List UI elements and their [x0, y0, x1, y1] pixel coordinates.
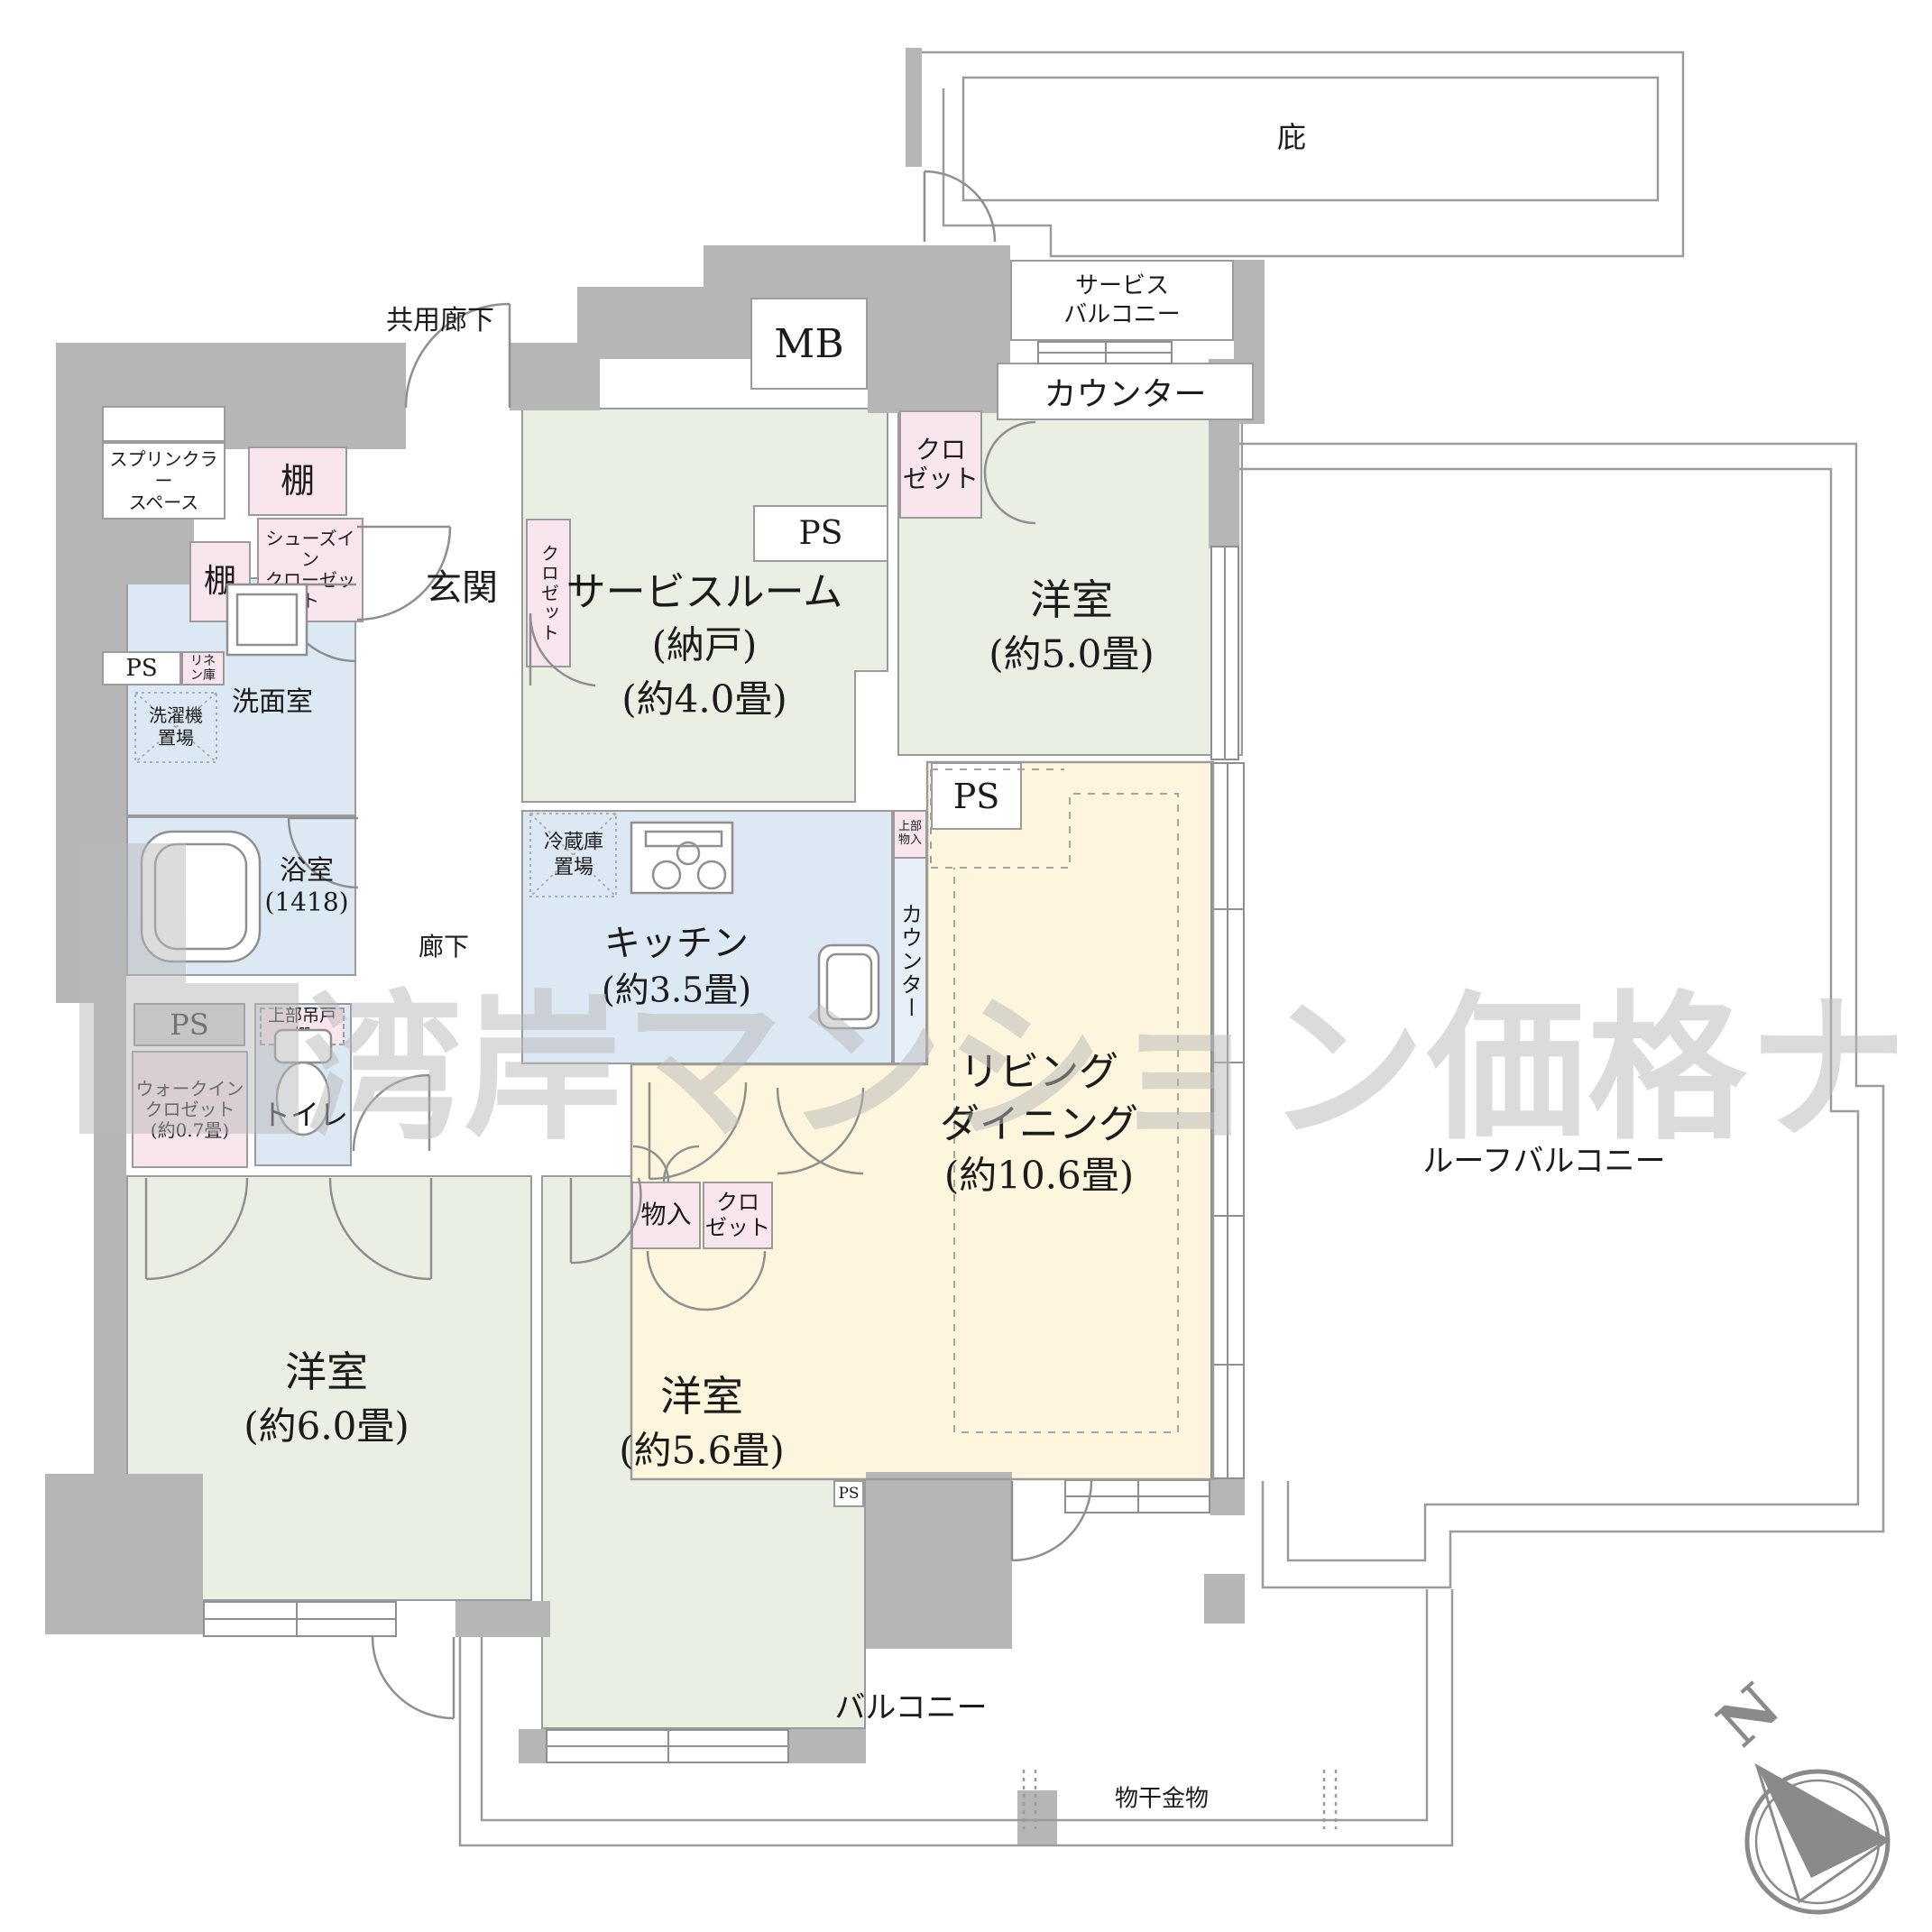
- label-common-corridor: 共用廊下: [386, 298, 494, 337]
- compass-needle-fill: [1757, 1766, 1888, 1878]
- monoire-label: 物入: [640, 1201, 691, 1229]
- label-ld-line1: リビング: [960, 1039, 1118, 1097]
- upper-storage-label2: 物入: [898, 834, 922, 848]
- label-bed56-name: 洋室: [660, 1364, 743, 1423]
- ps-label: PS: [799, 515, 843, 552]
- wall-pillar: [1017, 1790, 1057, 1846]
- closet-label2: ゼット: [705, 1216, 770, 1241]
- compass-inner-circle: [1756, 1780, 1879, 1903]
- roof-balcony-outline-inner: [1239, 469, 1858, 1560]
- ps-label: PS: [170, 1007, 208, 1042]
- shoes-label1: シューズイン: [259, 529, 362, 570]
- ps-box-top: PS: [753, 505, 888, 562]
- wall: [577, 287, 713, 359]
- roof-balcony-outline-outer: [1239, 444, 1883, 1587]
- window-bed6-bottom: [203, 1601, 397, 1637]
- wall: [94, 1003, 126, 1474]
- upper-cabinet-label: 上部吊戸棚: [262, 1007, 343, 1046]
- shelf-box-top: 棚: [248, 446, 347, 516]
- label-kitchen-size: (約3.5畳): [602, 962, 751, 1012]
- wall-pillar: [1204, 1574, 1245, 1624]
- floor-plan: スプリンクラー スペース 棚 シューズイン クローゼット 棚 PS リネ ン庫 …: [0, 0, 1932, 1932]
- label-washer1: 洗濯機: [149, 704, 203, 726]
- wic-label3: (約0.7畳): [151, 1120, 229, 1141]
- mb-box: MB: [750, 298, 868, 390]
- label-kitchen-name: キッチン: [604, 914, 749, 966]
- door-toilet: [354, 1075, 429, 1151]
- label-bed56-size: (約5.6畳): [619, 1421, 785, 1476]
- shoes-label2: クローゼット: [259, 570, 362, 612]
- closet-label1: クロ: [915, 436, 966, 465]
- upper-cabinet-box-toilet: 上部吊戸棚: [260, 1007, 345, 1045]
- label-washer2: 置場: [158, 727, 194, 749]
- compass-north-label: N: [1704, 1670, 1794, 1761]
- label-ld-size: (約10.6畳): [944, 1145, 1134, 1201]
- counter-box-top: カウンター: [997, 363, 1254, 420]
- wall: [868, 359, 1010, 413]
- window-counter-top: [1037, 341, 1173, 364]
- wall: [45, 1474, 203, 1634]
- service-balcony-label1: サービス: [1075, 272, 1169, 299]
- label-fridge1: 冷蔵庫: [544, 832, 603, 854]
- label-service-sub: (納戸): [652, 615, 758, 670]
- closet-box-bed56: クロ ゼット: [703, 1182, 773, 1249]
- label-bed5-size: (約5.0畳): [989, 624, 1155, 679]
- wall: [455, 1601, 550, 1637]
- label-monohoshi: 物干金物: [1115, 1780, 1209, 1814]
- door-hisashi: [925, 171, 995, 242]
- wall: [906, 48, 922, 167]
- label-service-name: サービスルーム: [566, 559, 843, 617]
- hisashi-outline-inner: [963, 78, 1658, 200]
- shelf-label: 棚: [204, 563, 236, 600]
- label-bed5-name: 洋室: [1030, 567, 1113, 627]
- closet-box-entrance: クロゼット: [526, 519, 571, 667]
- closet-box-bed5: クロ ゼット: [899, 410, 982, 519]
- sprinkler-space-box-top: [102, 406, 225, 442]
- label-service-size: (約4.0畳): [621, 669, 787, 724]
- ps-label: PS: [838, 1485, 859, 1503]
- window-bed56-bottom: [546, 1729, 789, 1763]
- label-bed6-name: 洋室: [285, 1339, 368, 1399]
- label-ld-line2: ダイニング: [940, 1091, 1138, 1149]
- window-ld-right: [1210, 762, 1245, 1479]
- door-bed6-balcony: [373, 1637, 454, 1718]
- label-bath: 浴室: [280, 848, 334, 888]
- label-fridge: 冷蔵庫 置場: [544, 831, 603, 880]
- label-washer: 洗濯機 置場: [149, 704, 203, 750]
- closet-label2: ゼット: [903, 465, 979, 493]
- compass-needle-outline: [1757, 1766, 1888, 1901]
- label-balcony: バルコニー: [834, 1683, 987, 1727]
- closet-label: クロゼット: [538, 544, 559, 643]
- linen-label1: リネ: [190, 654, 216, 668]
- label-hisashi: 庇: [1277, 115, 1306, 156]
- shelf-label: 棚: [281, 462, 315, 501]
- upper-storage-box-kitchen: 上部 物入: [893, 810, 927, 859]
- label-fridge2: 置場: [554, 856, 593, 879]
- sprinkler-space-box: スプリンクラー スペース: [102, 442, 225, 520]
- wall: [56, 584, 126, 1003]
- sprinkler-label2: スペース: [129, 492, 199, 513]
- upper-storage-label1: 上部: [898, 821, 922, 834]
- wic-box: ウォークイン クロゼット (約0.7畳): [132, 1051, 248, 1168]
- mb-label: MB: [774, 321, 843, 367]
- compass-outer-circle: [1747, 1771, 1888, 1912]
- linen-box: リネ ン庫: [181, 651, 225, 685]
- ps-label: PS: [125, 655, 157, 682]
- label-washroom: 洗面室: [232, 679, 313, 719]
- ps-box-washroom: PS: [102, 651, 181, 685]
- wall: [519, 1729, 547, 1763]
- wic-label1: ウォークイン: [136, 1079, 244, 1099]
- service-balcony-box: サービス バルコニー: [1010, 260, 1234, 341]
- wall: [787, 1729, 866, 1763]
- label-kitchen-counter: カウンター: [895, 903, 926, 1020]
- label-bed6-size: (約6.0畳): [244, 1396, 409, 1451]
- closet-label1: クロ: [716, 1191, 759, 1216]
- label-bath-size: (1418): [264, 888, 348, 917]
- service-balcony-label2: バルコニー: [1063, 301, 1180, 328]
- label-toilet: トイレ: [262, 1092, 348, 1134]
- service-room-notch: [854, 670, 888, 803]
- shelf-box-left: 棚: [189, 541, 251, 622]
- wall: [866, 1472, 1012, 1649]
- window-bed5-right: [1210, 546, 1239, 760]
- label-genkan: 玄関: [426, 558, 498, 611]
- sprinkler-label1: スプリンクラー: [110, 448, 218, 492]
- wic-label2: クロゼット: [145, 1099, 235, 1120]
- monoire-box: 物入: [631, 1182, 701, 1249]
- ps-box-ld: PS: [931, 762, 1022, 830]
- window-ld-bottom: [1064, 1479, 1210, 1513]
- linen-label2: ン庫: [190, 668, 216, 683]
- ps-box-bath: PS: [133, 1003, 245, 1046]
- shoes-in-closet-box: シューズイン クローゼット: [257, 518, 363, 622]
- ps-label: PS: [953, 777, 1000, 816]
- label-roof-balcony: ルーフバルコニー: [1422, 1136, 1665, 1181]
- label-hallway: 廊下: [419, 927, 469, 963]
- ps-box-bed56: PS: [833, 1480, 864, 1507]
- counter-label: カウンター: [1044, 368, 1206, 415]
